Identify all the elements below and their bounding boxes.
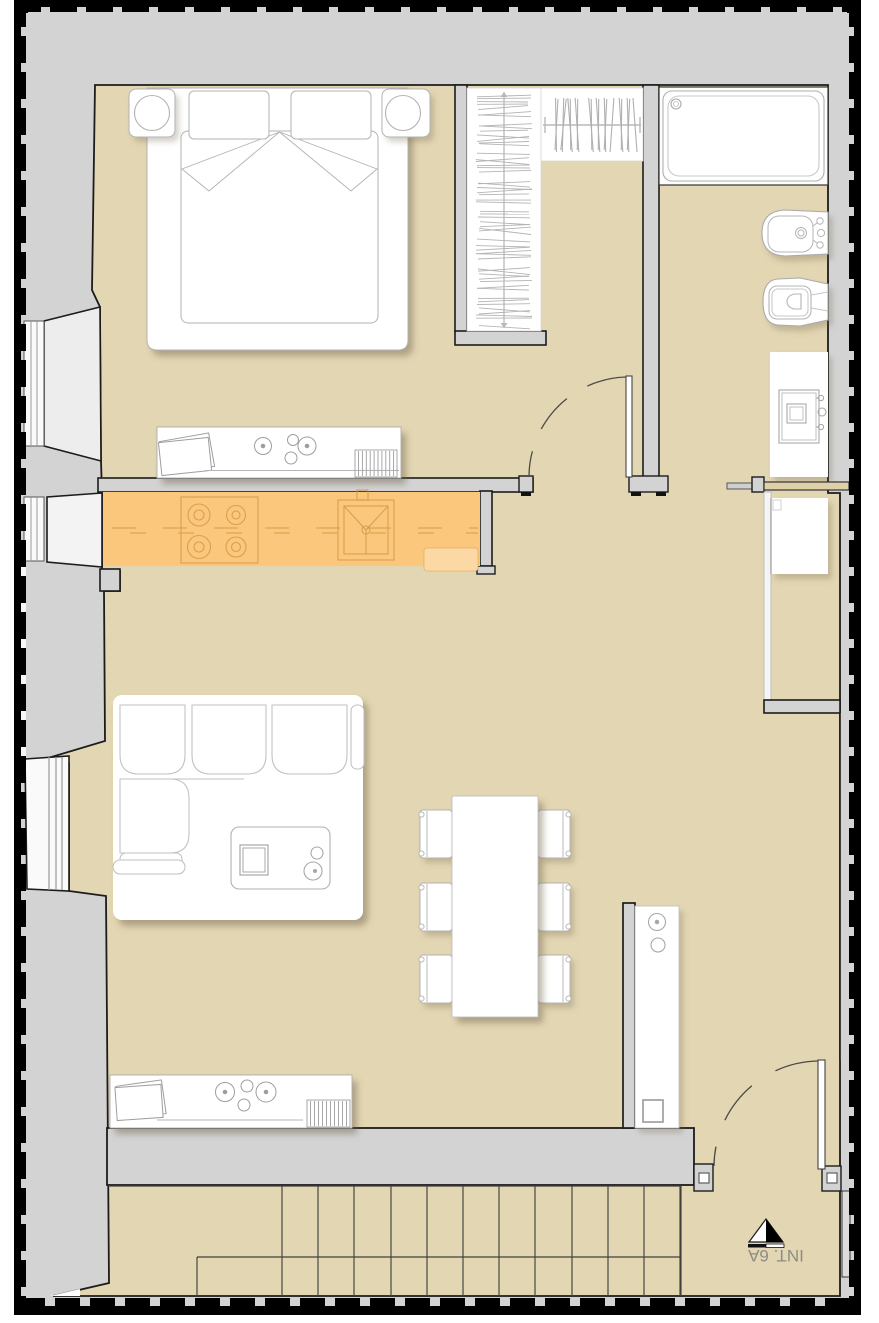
svg-text:INT. 6A: INT. 6A	[747, 1246, 803, 1265]
